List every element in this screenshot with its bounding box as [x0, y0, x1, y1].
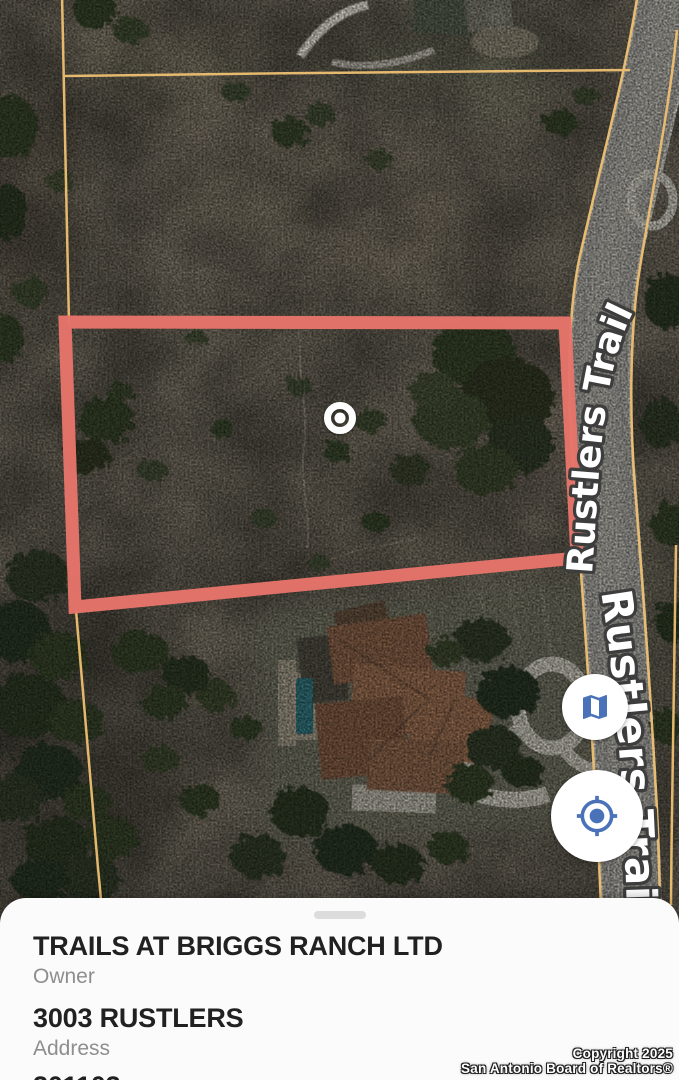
drag-handle[interactable]: [314, 911, 366, 919]
attribution-line2: San Antonio Board of Realtors®: [461, 1061, 673, 1076]
app-screen: Rustlers Trail Rustlers Trail TRAILS AT …: [0, 0, 679, 1080]
owner-value: TRAILS AT BRIGGS RANCH LTD: [33, 931, 679, 961]
my-location-button[interactable]: [551, 770, 643, 862]
owner-label: Owner: [33, 965, 679, 989]
my-location-icon: [575, 794, 619, 838]
map-type-button[interactable]: [562, 674, 628, 740]
address-value: 3003 RUSTLERS: [33, 1003, 679, 1033]
map-attribution: Copyright 2025 San Antonio Board of Real…: [461, 1046, 673, 1076]
map-icon: [579, 691, 611, 723]
attribution-line1: Copyright 2025: [461, 1046, 673, 1061]
